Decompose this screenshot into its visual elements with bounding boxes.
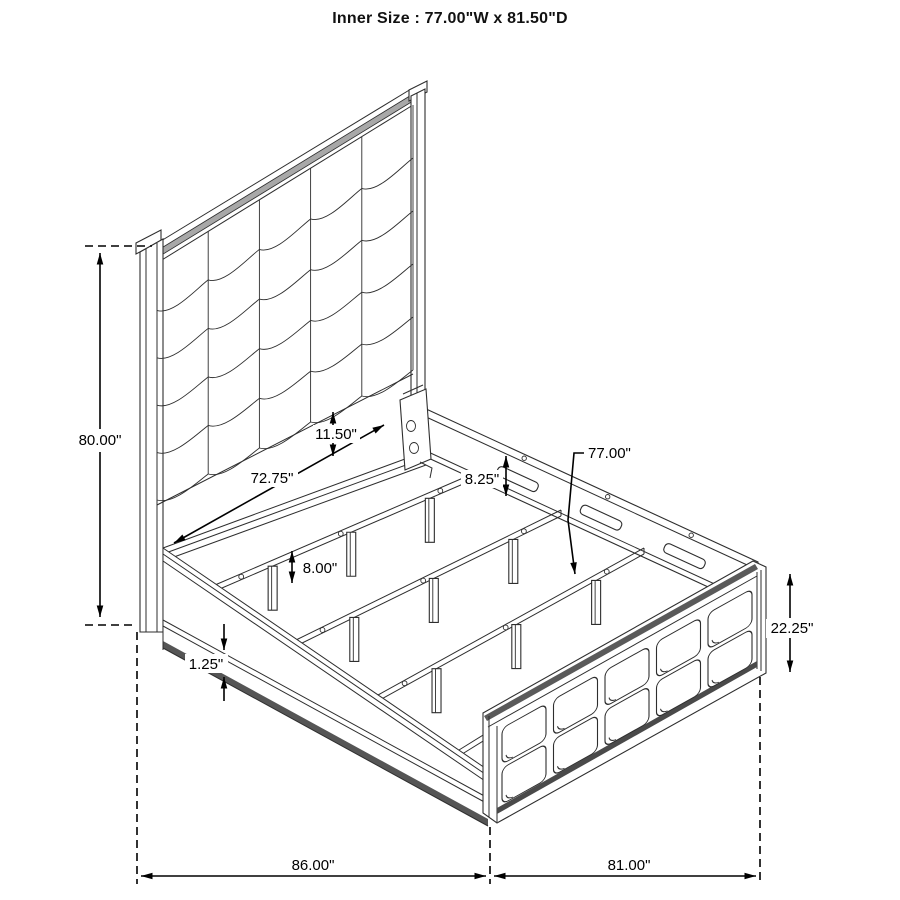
dim-label-22-25: 22.25"	[771, 620, 814, 637]
dim-label-77: 77.00"	[588, 445, 631, 462]
headboard-tufted-panel	[157, 105, 413, 501]
dim-label-11-50: 11.50"	[315, 426, 357, 443]
headboard-left-post	[140, 239, 163, 632]
bed-dimension-diagram-page: Inner Size : 77.00"W x 81.50"D	[0, 0, 900, 900]
dim-footboard-height: 22.25"	[766, 574, 818, 672]
dim-label-8-25: 8.25"	[465, 471, 500, 488]
dim-label-8: 8.00"	[303, 560, 338, 577]
dim-overall-width: 81.00"	[494, 857, 756, 876]
dim-label-72-75: 72.75"	[251, 470, 294, 487]
bracket-hole	[410, 443, 419, 454]
bracket-hole	[407, 421, 416, 432]
dim-headboard-to-rail: 11.50"	[313, 412, 360, 456]
dim-label-80: 80.00"	[79, 432, 122, 449]
bed-dimension-diagram: 80.00" 72.75" 11.50" 8.25" 77.00" 8.00"	[0, 0, 900, 900]
dim-label-1-25: 1.25"	[189, 656, 224, 673]
dim-label-81: 81.00"	[608, 857, 651, 874]
mounting-bracket	[400, 389, 431, 470]
dim-label-86: 86.00"	[292, 857, 335, 874]
